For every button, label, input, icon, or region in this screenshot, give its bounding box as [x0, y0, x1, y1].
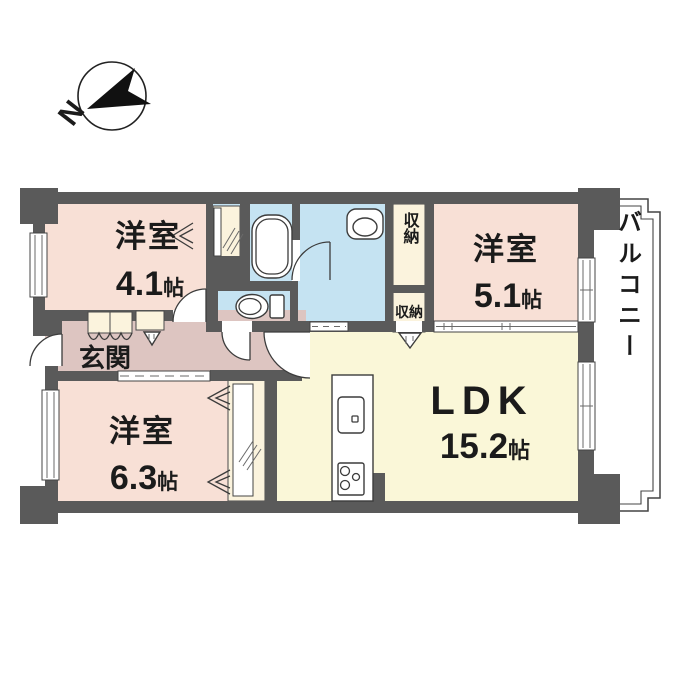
entrance-label: 玄関	[79, 343, 131, 373]
compass: N	[52, 62, 151, 132]
kitchen-stove	[338, 463, 364, 495]
storage-lower-label: 収納	[395, 304, 423, 320]
wall-washroom-right	[385, 204, 393, 332]
room-51-label: 洋室	[473, 232, 539, 267]
wall-right-a	[578, 230, 594, 258]
wall-storage-right	[425, 204, 434, 332]
slide-washroom	[310, 322, 348, 331]
wall-right-c	[578, 450, 594, 478]
pillar-bottom-right	[578, 474, 620, 524]
slide-hall-room63	[118, 371, 210, 381]
wall-bath-bottom	[240, 281, 298, 291]
wall-bath-left	[240, 204, 250, 260]
window-room63-left	[42, 390, 59, 480]
wall-storage-divider	[385, 285, 434, 293]
wall-bottom	[33, 501, 578, 513]
wall-right-b	[578, 322, 594, 362]
wall-bath-right	[292, 204, 300, 240]
floor-plan-drawing: N	[0, 0, 700, 700]
ldk-label: LDK	[430, 379, 533, 423]
wall-top	[33, 192, 578, 204]
toilet	[236, 295, 284, 319]
wall-closet63-right	[265, 378, 277, 501]
kitchen	[332, 375, 373, 501]
floor-plan-page: N	[0, 0, 700, 700]
balcony-label: バルコニー	[614, 210, 641, 365]
window-room51-balcony	[578, 258, 595, 322]
slide-room51-ldk	[434, 321, 578, 332]
window-ldk-balcony	[578, 362, 595, 450]
room-41-label: 洋室	[115, 219, 181, 254]
kitchen-sink	[338, 397, 364, 433]
storage-upper-label: 収納	[401, 212, 420, 245]
window-room41-left	[30, 233, 47, 297]
wall-toilet-right	[290, 281, 298, 321]
wall-toilet-left	[206, 291, 218, 321]
washbasin	[347, 209, 383, 239]
room-63-label: 洋室	[109, 414, 175, 449]
wall-closet41-left	[206, 204, 213, 260]
entrance-door	[30, 334, 62, 366]
bathtub	[252, 215, 292, 278]
